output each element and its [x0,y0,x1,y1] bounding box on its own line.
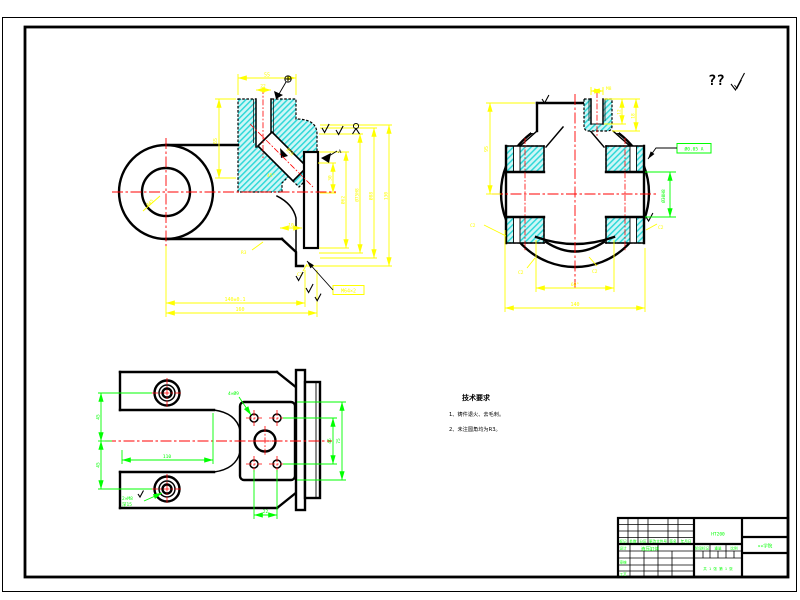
roughness-vee-icon [353,129,360,135]
plan-view: 45 45 110 75 46 22 4×Ø9 [96,370,347,519]
dim-text: 75 [336,438,342,444]
sleeve-gap [630,217,637,243]
tb-header: 更改文件号 [649,539,667,544]
flange-disc-edge [296,370,305,510]
dim-length2: 160 [166,270,317,317]
dim-left-height: 65 [213,99,236,178]
web-line [519,131,537,147]
sleeve-gap [630,146,637,172]
slot-fillet [214,410,240,430]
dim-text: Ø62 [340,196,347,204]
tb-weight: 重量 [714,546,722,551]
dim-text: Ø30H8 [660,189,667,203]
tb-row-design: 设计 [620,546,628,551]
dim-text: 110 [163,454,171,460]
dim-slot-length: 110 [122,413,213,464]
upper-boss [152,378,182,408]
tb-scale: 比例 [730,546,738,551]
bottom-chamfer [277,492,297,508]
tb-sheets: 共 1 张 第 1 张 [703,566,733,571]
thread-label: M64×2 [341,289,356,295]
dim-text: 60° [571,282,579,288]
dim-text: 130 [384,192,390,200]
leader-fillet: R3 [241,242,263,256]
roughness-check-icon [306,284,313,293]
dim-text: 65 [213,138,219,144]
notes-title: 技术要求 [462,393,491,402]
leader-chamfer-left: C2 [470,223,506,236]
chamfer-text: C2 [470,223,476,229]
chamfer-text: C2 [518,270,524,276]
datum-letter: A [338,150,342,155]
dim-top-thread: M8 [591,86,612,95]
tb-header: 分区 [639,539,647,544]
boss-thread-text-2: 深15 [122,501,132,508]
tb-company: ××学院 [758,543,773,550]
dim-text: 10 [288,223,294,229]
dim-text: 12 [617,109,623,115]
tb-row-check: 审核 [620,560,628,565]
boss-thread-text-1: 2×M8 [122,496,133,502]
dim-text: 140±0.1 [224,297,245,303]
chamfer-text: C2 [592,269,598,275]
tb-material: HT200 [711,532,725,538]
tb-stage: 阶段标记 [695,546,710,551]
dim-text: 95 [484,146,490,152]
dim-text: 160 [235,307,244,313]
tb-part-name: 液压缸体 [641,546,659,553]
holes-label: 4×Ø9 [228,390,239,397]
cad-viewport[interactable]: ?? 55 [0,0,800,600]
tolerance-text: Ø0.05 A [685,146,704,153]
dim-text: 18 [631,113,637,119]
fillet-text: R3 [241,250,247,256]
dim-dia1: Ø62 [319,152,349,248]
cad-drawing-canvas[interactable]: ?? 55 [0,0,800,600]
dim-text: 45 [96,462,102,468]
title-block: 标记 处数 分区 更改文件号 签名 年月日 设计 审核 工艺 液压缸体 HT20… [618,518,788,577]
dim-text: 30 [328,175,334,181]
corner-mark-text: ?? [708,73,725,89]
dim-text: 22 [263,509,269,515]
dim-text: Ø88 [368,192,375,200]
chamfer-text: C2 [658,225,664,231]
notes-item-1: 1、铸件退火、去毛刺。 [449,410,504,418]
sleeve-gap [514,217,521,243]
dim-text: M8 [606,86,612,92]
dim-slot-width: 22 [256,84,271,91]
dim-text: 140 [570,302,579,308]
technical-notes: 技术要求 1、铸件退火、去毛刺。 2、未注圆角均为R3。 [449,393,504,433]
front-view: 55 22 65 30 Ø62 Ø75 [112,73,392,318]
tb-header: 标记 [619,539,627,544]
dim-boss-span-upper: 45 [96,393,153,441]
tb-row-process: 工艺 [620,572,628,577]
tolerance-frame: Ø0.05 A [648,144,711,160]
dim-neck: 10 [280,223,302,229]
leader-chamfer-right: C2 [646,224,664,231]
leader-chamfer-b1: C2 [518,258,535,276]
roughness-check-icon [138,491,144,498]
dim-text: 45 [96,414,102,420]
top-chamfer [277,372,297,388]
notes-item-2: 2、未注圆角均为R3。 [449,425,501,433]
dim-boss-inner: 30 [318,163,336,193]
datum-target-symbol [274,76,291,99]
port-angle-text: 45° [267,173,275,179]
web-line [613,131,631,147]
corner-roughness-mark: ?? [708,73,745,90]
dim-text: Ø75H8 [354,188,361,202]
roughness-check-icon [336,126,343,135]
dim-boss-span-lower: 45 [96,441,153,489]
dim-text: 22 [260,84,266,90]
bottom-chamfer [282,239,303,266]
inner-border [25,27,788,577]
side-view: M8 12 18 95 C2 C2 Ø30H8 [470,86,711,312]
rod-end-cap [304,152,318,248]
lower-boss [152,474,182,504]
sleeve-gap [514,146,521,172]
tb-header: 处数 [629,539,637,544]
roughness-check-icon [315,294,321,301]
dim-text: 55 [264,73,270,79]
dim-text: 46 [327,438,333,444]
cylinder-edge [305,382,320,498]
tb-header: 签名 [669,539,677,544]
slot-fillet [214,452,240,472]
tb-header: 年月日 [681,539,692,544]
